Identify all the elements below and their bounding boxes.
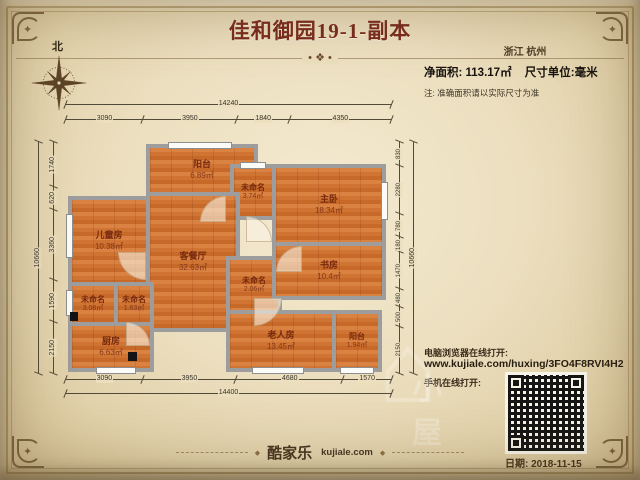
dim-bottom-segments: 3090395046801570 xyxy=(66,374,392,384)
dimension-segment: 10660 xyxy=(33,142,43,373)
dim-left-total: 10660 xyxy=(33,142,43,374)
dim-top-total: 14240 xyxy=(66,99,392,109)
dimension-segment: 14400 xyxy=(66,388,391,398)
room-master-bedroom: 主卧18.34㎡ xyxy=(272,164,386,246)
dimension-segment: 180 xyxy=(394,237,404,252)
qr-finder-icon xyxy=(508,375,524,391)
dim-right-total: 10660 xyxy=(408,142,418,374)
window xyxy=(340,367,374,374)
dimension-segment: 3090 xyxy=(66,374,143,384)
dimension-segment: 2150 xyxy=(394,327,404,373)
dim-top-segments: 3090395018404350 xyxy=(66,114,392,124)
dimension-segment: 3360 xyxy=(48,210,58,280)
window xyxy=(381,182,388,220)
dimension-segment: 1840 xyxy=(237,114,290,124)
dimension-segment: 1740 xyxy=(48,142,58,187)
brand-domain: kujiale.com xyxy=(321,447,373,458)
dim-left-segments: 1740620336015902150 xyxy=(48,142,58,374)
footer-divider-line xyxy=(392,452,464,453)
dimension-segment: 4350 xyxy=(290,114,391,124)
dimension-segment: 1570 xyxy=(343,374,391,384)
dim-bottom-total: 14400 xyxy=(66,388,392,398)
dimension-segment: 10660 xyxy=(408,142,418,373)
window xyxy=(66,214,73,258)
qr-finder-icon xyxy=(568,375,584,391)
room-elder-room: 老人房13.45㎡ xyxy=(226,310,336,372)
dimension-segment: 1470 xyxy=(394,252,404,289)
dimension-segment: 2150 xyxy=(48,322,58,373)
footer-divider-line xyxy=(176,452,248,453)
window xyxy=(252,367,304,374)
column-marker xyxy=(128,352,137,361)
column-marker xyxy=(70,312,78,321)
room-balcony-bottom: 阳台1.94㎡ xyxy=(332,310,382,372)
window xyxy=(96,367,136,374)
dimension-segment: 3090 xyxy=(66,114,143,124)
dimension-segment: 4680 xyxy=(236,374,343,384)
brand-logo: 酷家乐 xyxy=(267,442,312,463)
dim-right-segments: 830228078018014704805002150 xyxy=(394,142,404,374)
qr-pattern xyxy=(508,375,584,451)
dimension-segment: 3950 xyxy=(143,114,237,124)
dimension-segment: 2280 xyxy=(394,166,404,214)
dimension-segment: 14240 xyxy=(66,99,391,109)
dimension-segment: 1590 xyxy=(48,280,58,322)
footer-diamond-icon: ◆ xyxy=(380,449,385,457)
date-label: 日期: 2018-11-15 xyxy=(505,455,582,470)
window xyxy=(240,162,266,169)
window xyxy=(168,142,232,149)
dimension-segment: 3950 xyxy=(143,374,236,384)
footer-diamond-icon: ◆ xyxy=(255,449,260,457)
room-unnamed-left-b: 未命名1.63㎡ xyxy=(114,282,154,326)
floorplan-sheet: ✦ ✦ ✦ ✦ 佳和御园19-1-副本 • ❖ • 浙江 杭州 净面积: 113… xyxy=(0,0,640,480)
